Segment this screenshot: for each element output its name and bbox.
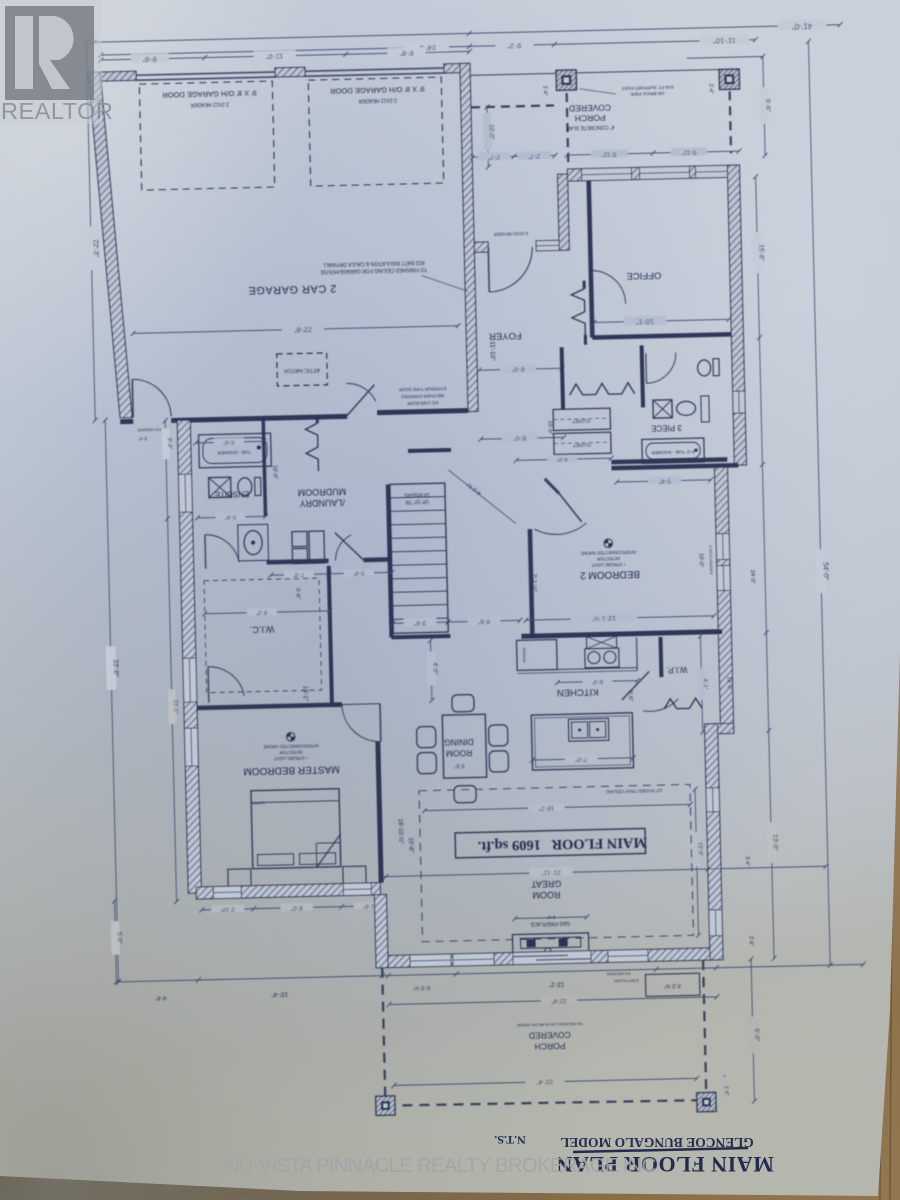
svg-text:TUB - SHOWER: TUB - SHOWER xyxy=(217,450,251,456)
svg-text:10'-1": 10'-1" xyxy=(636,317,655,324)
svg-text:10'-0": 10'-0" xyxy=(271,465,277,479)
svg-text:W.I.P.: W.I.P. xyxy=(667,665,688,674)
svg-text:5'-6": 5'-6" xyxy=(223,438,234,444)
svg-text:5'-11": 5'-11" xyxy=(682,148,697,154)
svg-text:18'-6": 18'-6" xyxy=(725,676,731,690)
svg-text:6'-0": 6'-0" xyxy=(512,434,526,441)
svg-text:2'-10": 2'-10" xyxy=(221,906,235,912)
svg-text:5'-0" TUB - SHOWER: 5'-0" TUB - SHOWER xyxy=(651,449,695,455)
svg-text:5'-11": 5'-11" xyxy=(602,150,617,156)
svg-text:10'-6": 10'-6" xyxy=(407,837,413,852)
svg-text:ON BRICK PIER: ON BRICK PIER xyxy=(630,91,664,97)
svg-text:3'-6": 3'-6" xyxy=(414,619,426,625)
svg-text:13'-1": 13'-1" xyxy=(302,686,308,701)
svg-text:CLOSET: CLOSET xyxy=(572,419,590,424)
svg-text:2'-6": 2'-6" xyxy=(748,936,754,946)
svg-text:9'-6": 9'-6" xyxy=(478,617,490,623)
svg-text:13'-1 ½": 13'-1 ½" xyxy=(591,614,616,623)
svg-text:5'-5": 5'-5" xyxy=(454,762,464,768)
svg-text:DINING: DINING xyxy=(444,737,474,748)
svg-text:2'-4": 2'-4" xyxy=(138,436,147,441)
svg-text:3 PIECE: 3 PIECE xyxy=(651,423,682,433)
svg-text:+ STROBE LIGHT: + STROBE LIGHT xyxy=(274,756,309,762)
svg-text:11'-10": 11'-10" xyxy=(713,36,736,46)
svg-text:FOYER: FOYER xyxy=(489,330,522,342)
svg-text:5'-0": 5'-0" xyxy=(546,915,555,920)
svg-text:4" CONCRETE SLAB: 4" CONCRETE SLAB xyxy=(566,124,615,131)
svg-text:10'-0": 10'-0" xyxy=(546,421,552,435)
svg-text:7'-0": 7'-0" xyxy=(575,755,587,761)
svg-text:4'-1": 4'-1" xyxy=(701,678,707,689)
svg-text:15'-4": 15'-4" xyxy=(271,991,288,998)
svg-text:MUDROOM: MUDROOM xyxy=(298,486,347,497)
svg-text:13'-2": 13'-2" xyxy=(549,980,564,986)
svg-text:6'-8": 6'-8" xyxy=(399,49,414,56)
svg-text:5'-2 ½": 5'-2 ½" xyxy=(413,984,430,991)
svg-text:S/C 4-5/8 DOOR: S/C 4-5/8 DOOR xyxy=(407,400,439,406)
svg-text:8'-0": 8'-0" xyxy=(592,678,603,684)
svg-text:24'-0": 24'-0" xyxy=(749,570,755,584)
svg-text:2'-7": 2'-7" xyxy=(528,152,540,158)
svg-text:9'-2": 9'-2" xyxy=(507,41,522,48)
svg-text:1'-6": 1'-6" xyxy=(363,902,374,908)
svg-text:13'-0": 13'-0" xyxy=(771,834,778,851)
svg-text:7'-3": 7'-3" xyxy=(293,571,304,577)
svg-text:ENSUITE: ENSUITE xyxy=(215,489,250,499)
svg-text:2-2X10 HEADER: 2-2X10 HEADER xyxy=(493,231,528,237)
svg-text:5'-6": 5'-6" xyxy=(659,477,671,483)
svg-text:5'-6": 5'-6" xyxy=(294,588,300,599)
svg-text:22'-8": 22'-8" xyxy=(294,325,313,332)
svg-text:OFFICE: OFFICE xyxy=(626,270,661,282)
svg-text:5/4 DECKING: 5/4 DECKING xyxy=(606,971,630,976)
svg-text:®: ® xyxy=(97,97,104,107)
svg-text:9'-0": 9'-0" xyxy=(753,1028,760,1042)
svg-text:14 RISERS: 14 RISERS xyxy=(404,491,430,498)
svg-text:KITCHEN: KITCHEN xyxy=(557,686,599,698)
svg-text:18'-10 ½": 18'-10 ½" xyxy=(397,818,405,843)
svg-text:DETECTOR: DETECTOR xyxy=(597,556,620,562)
svg-text:4'-0": 4'-0" xyxy=(557,456,568,462)
svg-text:+ STROBE LIGHT: + STROBE LIGHT xyxy=(591,562,626,568)
svg-text:9'-6": 9'-6" xyxy=(764,99,771,113)
svg-text:8'-4": 8'-4" xyxy=(165,438,171,449)
svg-text:DETECTOR: DETECTOR xyxy=(280,750,303,756)
svg-text:/LAUNDRY: /LAUNDRY xyxy=(299,498,345,509)
svg-text:COVERED: COVERED xyxy=(529,1030,571,1041)
svg-text:MAIN FLOOR: MAIN FLOOR xyxy=(551,834,647,852)
svg-text:5'-0": 5'-0" xyxy=(115,932,121,944)
svg-text:9'-0": 9'-0" xyxy=(291,904,303,910)
svg-text:13'-0": 13'-0" xyxy=(696,842,702,856)
svg-text:41'-0": 41'-0" xyxy=(792,21,813,30)
svg-text:3'-2 ⅝": 3'-2 ⅝" xyxy=(664,982,681,988)
svg-text:W.I.C.: W.I.C. xyxy=(250,624,275,635)
svg-text:BEDROOM 2: BEDROOM 2 xyxy=(579,568,640,580)
svg-text:22'-3": 22'-3" xyxy=(91,239,98,258)
svg-text:PORCH: PORCH xyxy=(535,1041,566,1052)
svg-text:2-2X10 HEADER: 2-2X10 HEADER xyxy=(708,545,713,574)
svg-text:N.T.S.: N.T.S. xyxy=(494,1133,525,1147)
svg-text:1609 sq.ft.: 1609 sq.ft. xyxy=(478,836,542,853)
svg-text:11'-0": 11'-0" xyxy=(265,52,283,59)
svg-text:UP 10" TR: UP 10" TR xyxy=(405,498,429,505)
svg-text:13'-1": 13'-1" xyxy=(172,699,178,713)
svg-text:MASTER BEDROOM: MASTER BEDROOM xyxy=(243,763,339,776)
svg-text:ROOM: ROOM xyxy=(446,748,473,759)
svg-text:54'-0": 54'-0" xyxy=(821,562,828,581)
svg-text:10'-0": 10'-0" xyxy=(697,553,703,567)
svg-text:1'-4": 1'-4" xyxy=(723,1086,729,1096)
svg-text:GREAT: GREAT xyxy=(530,879,561,890)
svg-text:2'-7": 2'-7" xyxy=(488,153,500,159)
svg-text:22'-8": 22'-8" xyxy=(551,997,566,1003)
svg-text:5'-6": 5'-6" xyxy=(225,513,236,519)
svg-text:PORCH: PORCH xyxy=(575,113,606,124)
svg-text:15'-8": 15'-8" xyxy=(757,244,764,261)
svg-text:NU-VISTA PINNACLE REALTY BROKE: NU-VISTA PINNACLE REALTY BROKERAGE INC xyxy=(225,1154,657,1177)
svg-text:ATTIC HATCH: ATTIC HATCH xyxy=(284,366,320,373)
svg-text:33'-8": 33'-8" xyxy=(111,659,118,678)
svg-text:11'-10": 11'-10" xyxy=(488,341,495,362)
svg-text:2-2X12 HEADER: 2-2X12 HEADER xyxy=(358,97,397,104)
svg-text:21'-11": 21'-11" xyxy=(540,869,561,876)
svg-text:18'-2": 18'-2" xyxy=(539,804,554,810)
svg-text:6'-0": 6'-0" xyxy=(511,365,525,372)
svg-text:WEATHER-STRIPPED: WEATHER-STRIPPED xyxy=(401,393,444,399)
svg-text:8'-2": 8'-2" xyxy=(256,609,267,615)
svg-text:2 CAR GARAGE: 2 CAR GARAGE xyxy=(248,282,337,296)
svg-text:3'-4": 3'-4" xyxy=(744,856,750,866)
svg-text:2-2X12 HEADER: 2-2X12 HEADER xyxy=(190,101,229,108)
svg-text:22'-4": 22'-4" xyxy=(536,1078,553,1085)
svg-text:CLOSET: CLOSET xyxy=(573,443,591,448)
svg-text:4'-0": 4'-0" xyxy=(431,662,437,674)
svg-text:QUEEN: QUEEN xyxy=(251,801,265,805)
svg-text:COVERED: COVERED xyxy=(569,102,611,113)
svg-text:5'-8": 5'-8" xyxy=(353,569,364,575)
svg-text:6'-6": 6'-6" xyxy=(142,55,157,62)
svg-text:7'-1 ½": 7'-1 ½" xyxy=(530,574,537,593)
svg-text:1'-4": 1'-4" xyxy=(707,84,713,94)
svg-text:ROOM: ROOM xyxy=(532,890,560,901)
svg-text:STEP FLUSH: STEP FLUSH xyxy=(614,978,639,984)
svg-text:4'-8": 4'-8" xyxy=(155,994,166,1000)
svg-text:GAS FIREPLACE: GAS FIREPLACE xyxy=(530,920,571,927)
svg-text:FRIDGE: FRIDGE xyxy=(522,648,527,664)
svg-text:10'-0": 10'-0" xyxy=(487,124,493,139)
svg-text:1'-4": 1'-4" xyxy=(541,86,547,96)
